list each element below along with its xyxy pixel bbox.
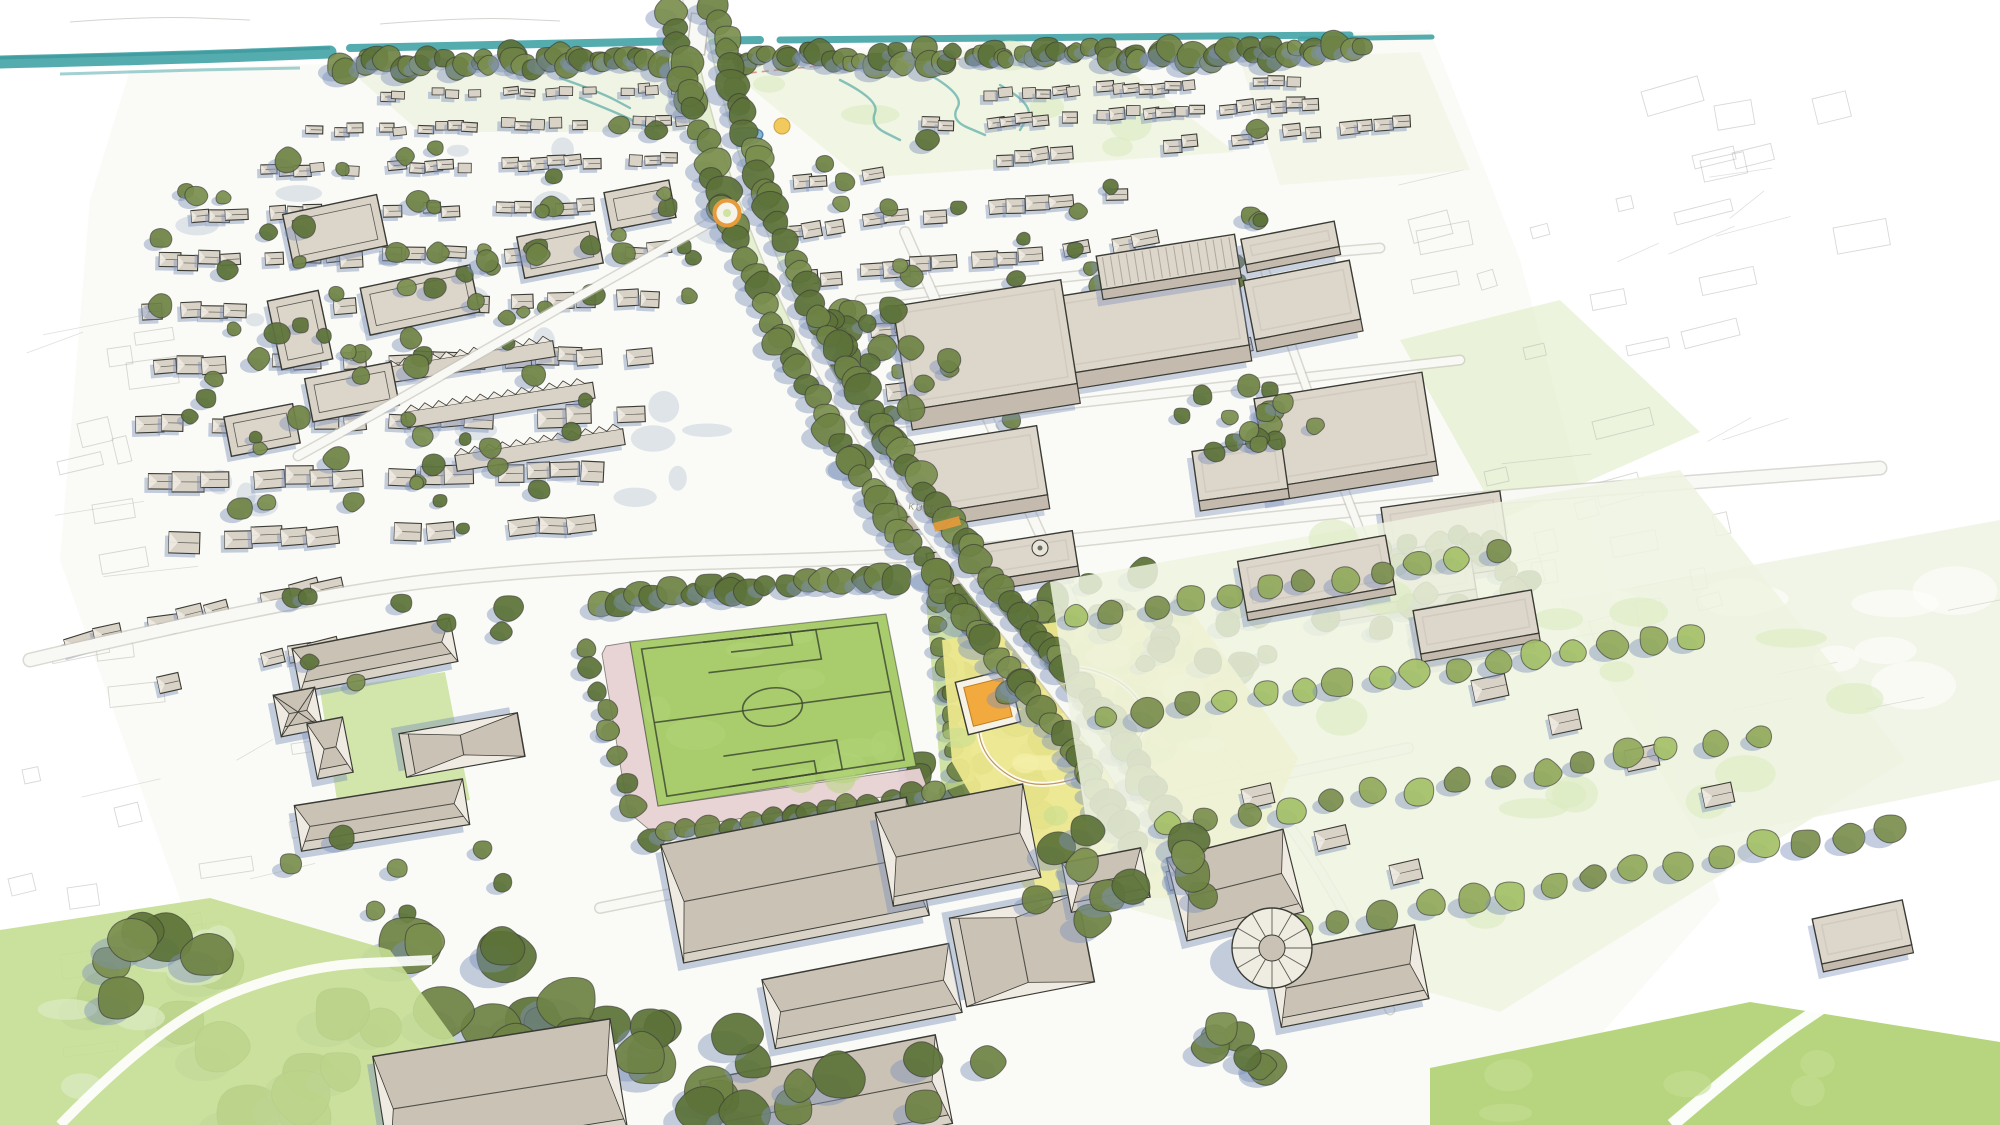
house [546, 462, 579, 482]
house [390, 522, 421, 545]
house [302, 527, 340, 552]
house [221, 209, 248, 225]
house [422, 522, 455, 545]
house [504, 517, 541, 541]
house [562, 515, 596, 539]
house [328, 470, 363, 493]
scene-root [0, 0, 2000, 1125]
house [250, 469, 286, 493]
house [164, 531, 200, 557]
house [927, 255, 957, 274]
house [613, 406, 645, 427]
roundabout [715, 201, 740, 226]
house [622, 348, 653, 371]
house [197, 472, 229, 492]
house [572, 349, 602, 371]
masterplan-illustration: KUNST [0, 0, 2000, 1125]
bus-shelter [1032, 540, 1048, 556]
masterplan-canvas: KUNST [0, 0, 2000, 1125]
house [919, 210, 947, 229]
house [150, 359, 178, 379]
house [1014, 247, 1043, 266]
